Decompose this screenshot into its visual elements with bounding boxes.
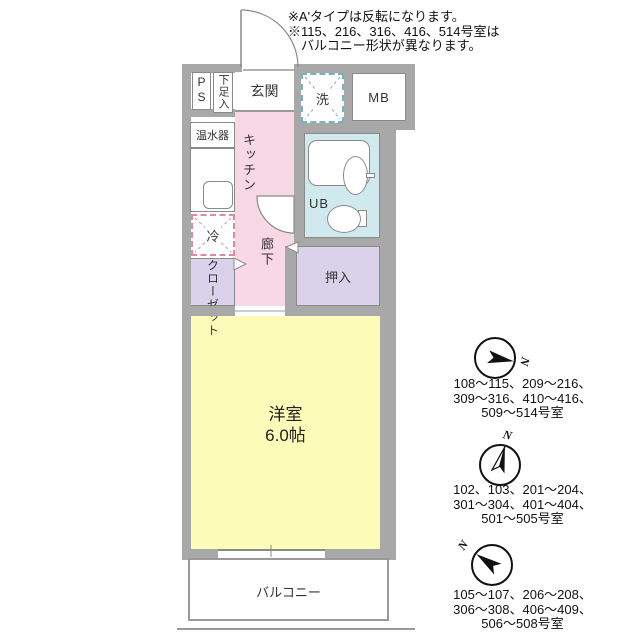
meter-box-label: MB <box>368 90 390 105</box>
pipe-space-label: PS <box>195 75 209 107</box>
entrance-label: 玄関 <box>251 81 279 101</box>
bathroom-sink <box>343 156 368 195</box>
water-heater-label: 温水器 <box>196 127 229 143</box>
roomlist-1: 108〜115、209〜216、 309〜316、410〜416、 509〜51… <box>415 377 630 421</box>
wall <box>380 121 396 560</box>
balcony-label: バルコニー <box>190 582 387 601</box>
washing-machine-space: 洗 <box>301 73 344 123</box>
kitchen-sink <box>203 181 233 209</box>
meter-box: MB <box>352 73 406 121</box>
wall <box>294 123 384 133</box>
refrigerator-label: 冷 <box>205 226 220 245</box>
note-line: ※115、216、316、416、514号室は <box>288 25 500 40</box>
shoe-cabinet: 下足入 <box>213 72 233 113</box>
water-heater: 温水器 <box>190 122 235 148</box>
western-room-label: 洋室 6.0帖 <box>191 404 380 446</box>
note-line: ※A'タイプは反転になります。 <box>288 10 500 25</box>
wall <box>182 64 242 73</box>
closet-room: クローゼット <box>189 258 235 306</box>
wall <box>294 126 304 246</box>
compass-3: N <box>464 537 520 593</box>
oshiire-room: 押入 <box>296 246 380 306</box>
floorplan-page: ※A'タイプは反転になります。 ※115、216、316、416、514号室は … <box>0 0 640 640</box>
faucet <box>366 173 375 178</box>
unit-bath-label: UB <box>309 196 329 211</box>
washing-machine-label: 洗 <box>315 89 330 108</box>
wall <box>296 64 415 73</box>
note-line: バルコニー形状が異なります。 <box>301 39 500 54</box>
balcony-outer-line <box>177 628 415 630</box>
wall <box>344 64 352 126</box>
wall <box>285 246 296 306</box>
notes-block: ※A'タイプは反転になります。 ※115、216、316、416、514号室は … <box>288 10 500 54</box>
balcony: バルコニー <box>188 558 389 621</box>
closet-label: クローゼット <box>204 259 221 305</box>
toilet <box>327 205 361 233</box>
roomlist-3: 105〜107、206〜208、 306〜308、406〜409、 506〜50… <box>415 588 630 632</box>
shoe-cabinet-label: 下足入 <box>215 74 231 112</box>
roomlist-2: 102、103、201〜204、 301〜304、401〜404、 501〜50… <box>415 483 630 527</box>
pipe-space: PS <box>192 72 211 110</box>
corridor-label: 廊下 <box>257 237 276 283</box>
oshiire-label: 押入 <box>325 267 351 286</box>
entrance-area: 玄関 <box>235 72 294 112</box>
wall <box>294 238 384 246</box>
wall <box>285 306 396 316</box>
kitchen-label: キッチン <box>239 133 258 213</box>
refrigerator-space: 冷 <box>191 214 235 256</box>
wall <box>182 306 235 316</box>
